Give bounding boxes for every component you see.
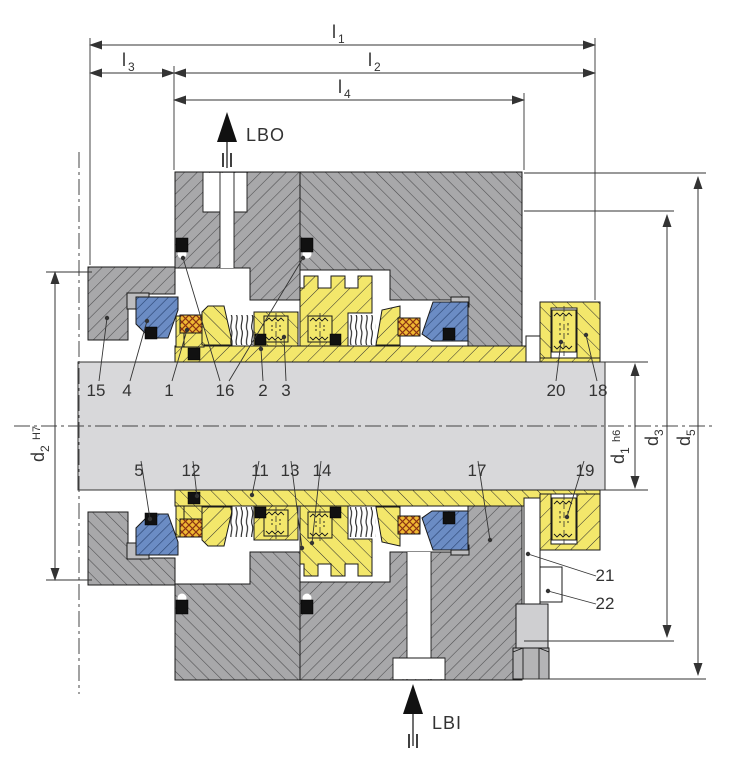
collar-set-screw-bottom — [552, 494, 576, 544]
dim-label-d2: d — [28, 452, 48, 462]
dim-label-l2: l — [368, 50, 372, 70]
part-label-2: 2 — [258, 381, 267, 400]
dim-label-d1: d — [608, 454, 628, 464]
svg-text:3: 3 — [128, 60, 135, 74]
spring-bottom-right — [348, 507, 376, 537]
svg-text:2: 2 — [374, 60, 381, 74]
svg-text:1: 1 — [618, 447, 632, 454]
setting-plate-top — [526, 336, 540, 362]
o-ring-sleeve-bottom-left — [188, 492, 200, 504]
part-label-20: 20 — [547, 381, 566, 400]
o-ring-16a-bottom — [176, 594, 188, 615]
rotating-face-bottom-right — [376, 507, 400, 546]
o-ring-seat-top-right — [443, 328, 455, 340]
part-label-5: 5 — [134, 461, 143, 480]
part-label-13: 13 — [281, 461, 300, 480]
housing-bottom-cover — [175, 552, 300, 680]
lbo-port-marker: LBO — [217, 112, 285, 168]
set-screw-bottom-mid — [308, 509, 332, 541]
part-label-1: 1 — [164, 381, 173, 400]
svg-text:5: 5 — [684, 429, 698, 436]
svg-text:H7: H7 — [31, 426, 43, 440]
collar-set-screw-top — [552, 306, 576, 356]
svg-text:3: 3 — [652, 429, 666, 436]
part-label-15: 15 — [87, 381, 106, 400]
packing-bottom-left — [180, 519, 202, 537]
o-ring-collar-bottom-1 — [255, 507, 266, 518]
dim-label-l3: l — [122, 50, 126, 70]
lbo-label: LBO — [246, 125, 285, 145]
seal-section-drawing: l 1 l 3 l 2 l 4 d 2 H7 d 1 h6 d 3 d 5 LB… — [0, 0, 731, 768]
svg-text:2: 2 — [38, 445, 52, 452]
dim-label-l4: l — [338, 77, 342, 97]
dim-label-l1: l — [332, 22, 336, 42]
part-label-17: 17 — [468, 461, 487, 480]
spring-top-left — [230, 315, 254, 345]
spring-top-right — [348, 315, 376, 345]
o-ring-16b-bottom — [301, 594, 313, 615]
svg-text:1: 1 — [338, 32, 345, 46]
drive-collar-top — [526, 302, 600, 362]
svg-text:h6: h6 — [611, 430, 623, 442]
part-label-3: 3 — [281, 381, 290, 400]
dim-label-d3: d — [642, 436, 662, 446]
packing-top-right — [398, 318, 420, 336]
o-ring-seat-top-left — [145, 327, 157, 339]
part-label-12: 12 — [182, 461, 201, 480]
setting-plate-bottom — [524, 498, 540, 604]
dim-label-d5: d — [674, 436, 694, 446]
o-ring-16a-top — [176, 238, 188, 259]
set-screw-bottom-left — [264, 507, 288, 539]
lbi-label: LBI — [432, 713, 462, 733]
o-ring-collar-bottom-2 — [330, 507, 341, 518]
rotating-face-top-right — [376, 306, 400, 345]
part-label-14: 14 — [313, 461, 332, 480]
part-label-18: 18 — [589, 381, 608, 400]
o-ring-seat-bottom-right — [443, 512, 455, 524]
spring-bottom-left — [230, 507, 254, 537]
hex-bolt — [513, 604, 549, 679]
technical-drawing-page: l 1 l 3 l 2 l 4 d 2 H7 d 1 h6 d 3 d 5 LB… — [0, 0, 731, 768]
rotating-face-bottom-left — [202, 507, 232, 546]
part-label-22: 22 — [596, 594, 615, 613]
part-label-4: 4 — [122, 381, 131, 400]
lbi-port-marker: LBI — [403, 684, 462, 748]
gland-screw — [540, 567, 562, 602]
packing-bottom-right — [398, 516, 420, 534]
o-ring-16b-top — [301, 238, 313, 259]
svg-text:4: 4 — [344, 87, 351, 101]
part-label-16: 16 — [216, 381, 235, 400]
part-label-21: 21 — [596, 566, 615, 585]
o-ring-sleeve-top-left — [188, 348, 200, 360]
packing-top-left — [180, 315, 202, 333]
o-ring-collar-top-2 — [330, 334, 341, 345]
part-label-19: 19 — [576, 461, 595, 480]
rotating-face-top-left — [202, 306, 232, 345]
set-screw-top-mid — [308, 313, 332, 345]
part-label-11: 11 — [251, 461, 269, 480]
